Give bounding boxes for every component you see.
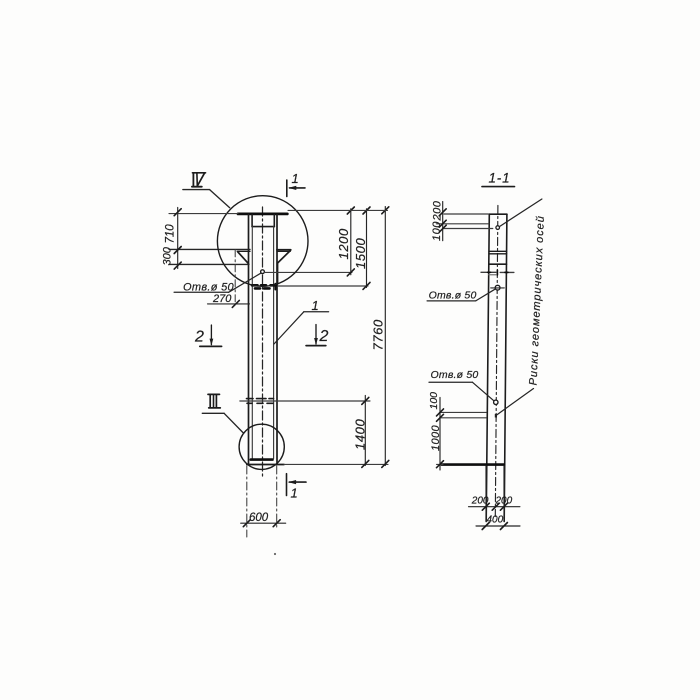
svg-text:1: 1 — [292, 171, 299, 186]
svg-text:1-1: 1-1 — [489, 171, 511, 186]
svg-text:2: 2 — [319, 328, 329, 345]
svg-text:1: 1 — [291, 486, 298, 501]
svg-text:400: 400 — [487, 515, 504, 526]
svg-text:1200: 1200 — [336, 228, 351, 259]
svg-text:200: 200 — [432, 200, 444, 221]
svg-text:1400: 1400 — [353, 419, 368, 450]
svg-text:200: 200 — [471, 496, 489, 507]
svg-text:7760: 7760 — [371, 319, 386, 350]
svg-text:300: 300 — [162, 246, 174, 265]
svg-text:1500: 1500 — [353, 238, 368, 269]
svg-text:200: 200 — [495, 496, 513, 507]
svg-text:100: 100 — [431, 221, 443, 241]
svg-text:Риски геометрических осей: Риски геометрических осей — [528, 215, 547, 386]
svg-text:Отв.ø 50: Отв.ø 50 — [429, 290, 477, 302]
svg-text:600: 600 — [249, 512, 269, 524]
svg-text:270: 270 — [212, 293, 232, 305]
svg-text:Отв.ø 50: Отв.ø 50 — [431, 369, 479, 381]
svg-text:710: 710 — [165, 224, 177, 244]
svg-text:1000: 1000 — [430, 424, 442, 451]
svg-text:100: 100 — [428, 392, 440, 410]
svg-text:2: 2 — [194, 329, 204, 346]
svg-text:1: 1 — [312, 298, 319, 313]
